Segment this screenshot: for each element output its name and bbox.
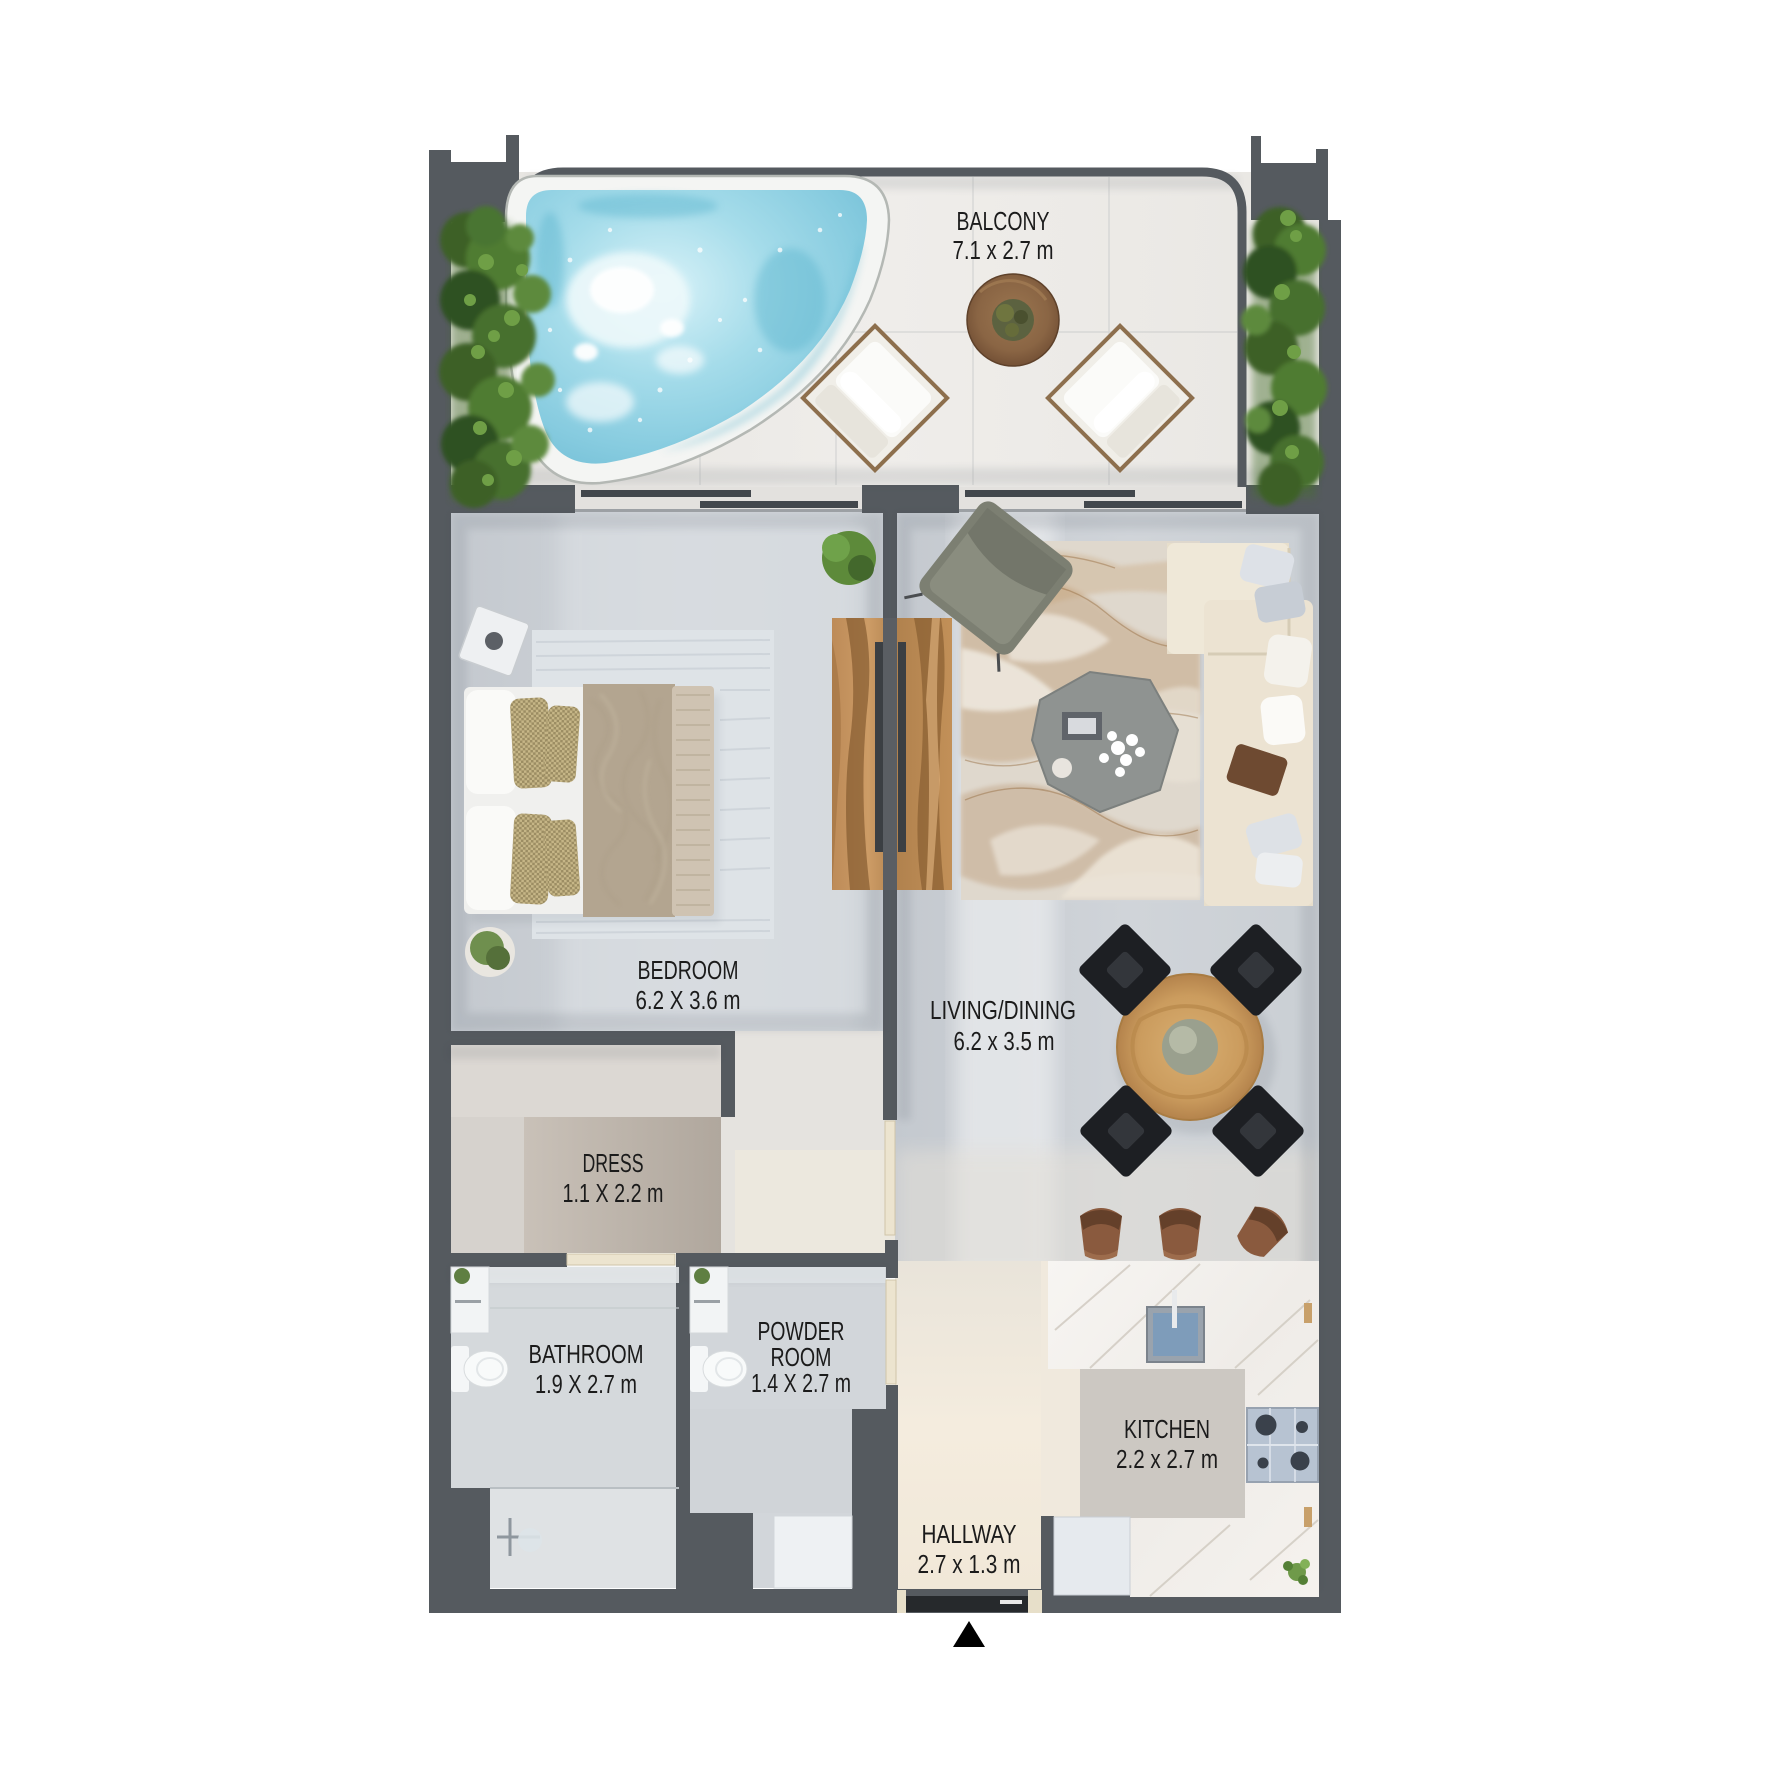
svg-text:POWDER: POWDER xyxy=(758,1318,845,1346)
svg-text:1.9 X 2.7 m: 1.9 X 2.7 m xyxy=(535,1371,637,1399)
svg-text:2.7 x 1.3 m: 2.7 x 1.3 m xyxy=(918,1551,1021,1579)
svg-text:BEDROOM: BEDROOM xyxy=(638,957,739,985)
svg-text:BALCONY: BALCONY xyxy=(957,208,1050,236)
svg-text:6.2 x 3.5 m: 6.2 x 3.5 m xyxy=(954,1028,1055,1056)
svg-text:2.2 x 2.7 m: 2.2 x 2.7 m xyxy=(1116,1446,1218,1474)
svg-text:ROOM: ROOM xyxy=(771,1344,832,1372)
svg-text:1.4 X 2.7 m: 1.4 X 2.7 m xyxy=(751,1370,851,1398)
svg-text:HALLWAY: HALLWAY xyxy=(922,1521,1017,1549)
svg-text:KITCHEN: KITCHEN xyxy=(1124,1416,1210,1444)
svg-text:7.1 x 2.7 m: 7.1 x 2.7 m xyxy=(953,237,1054,265)
svg-text:1.1 X 2.2 m: 1.1 X 2.2 m xyxy=(563,1180,664,1208)
svg-text:DRESS: DRESS xyxy=(583,1150,644,1178)
svg-text:6.2 X 3.6 m: 6.2 X 3.6 m xyxy=(636,987,741,1015)
svg-text:LIVING/DINING: LIVING/DINING xyxy=(930,997,1076,1025)
svg-text:BATHROOM: BATHROOM xyxy=(529,1341,644,1369)
